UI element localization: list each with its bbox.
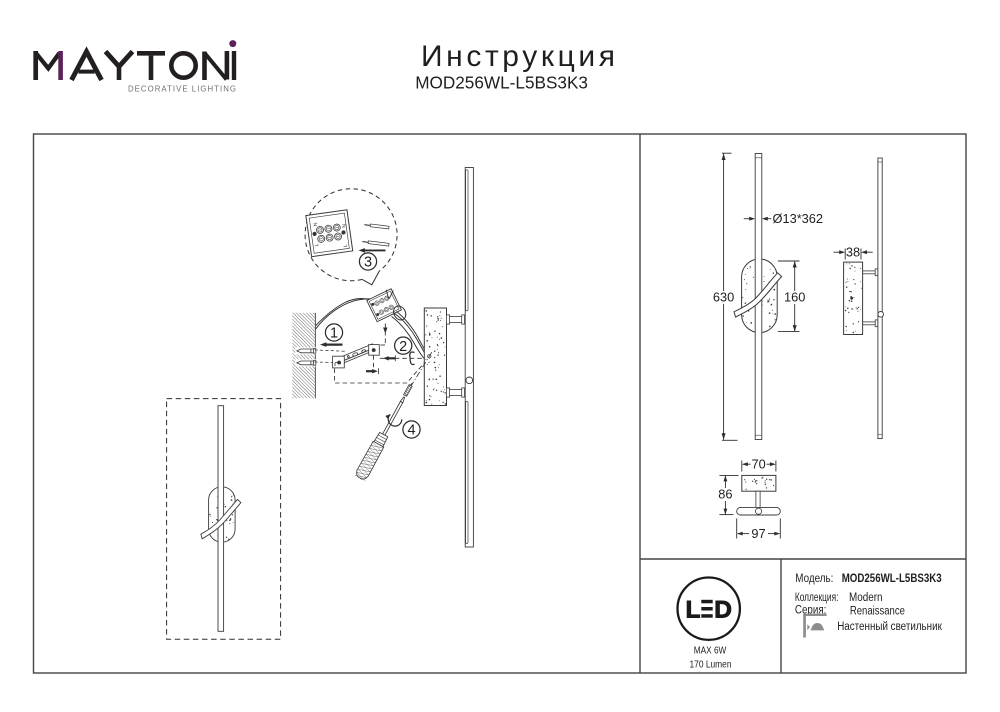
svg-text:170 Lumen: 170 Lumen xyxy=(690,659,732,671)
svg-text:MOD256WL-L5BS3K3: MOD256WL-L5BS3K3 xyxy=(415,73,588,93)
svg-text:38: 38 xyxy=(846,245,860,260)
svg-text:MAX 6W: MAX 6W xyxy=(694,645,727,657)
svg-text:86: 86 xyxy=(718,487,732,502)
svg-text:Renaissance: Renaissance xyxy=(850,606,905,618)
svg-text:Настенный светильник: Настенный светильник xyxy=(837,621,943,633)
svg-text:4: 4 xyxy=(407,423,415,439)
svg-text:3: 3 xyxy=(364,255,372,271)
svg-text:Модель:: Модель: xyxy=(795,571,833,585)
svg-text:2: 2 xyxy=(399,339,407,355)
svg-text:Инструкция: Инструкция xyxy=(421,40,615,73)
svg-text:D: D xyxy=(714,597,732,624)
svg-text:Ø13*362: Ø13*362 xyxy=(773,211,824,226)
svg-text:1: 1 xyxy=(330,326,338,342)
svg-text:L: L xyxy=(686,597,701,624)
svg-text:MOD256WL-L5BS3K3: MOD256WL-L5BS3K3 xyxy=(842,573,942,585)
svg-text:630: 630 xyxy=(713,290,734,305)
svg-text:Modern: Modern xyxy=(849,592,883,604)
svg-text:160: 160 xyxy=(784,290,805,305)
svg-text:70: 70 xyxy=(751,456,765,471)
svg-text:DECORATIVE LIGHTING: DECORATIVE LIGHTING xyxy=(128,85,236,94)
svg-text:97: 97 xyxy=(751,526,765,541)
